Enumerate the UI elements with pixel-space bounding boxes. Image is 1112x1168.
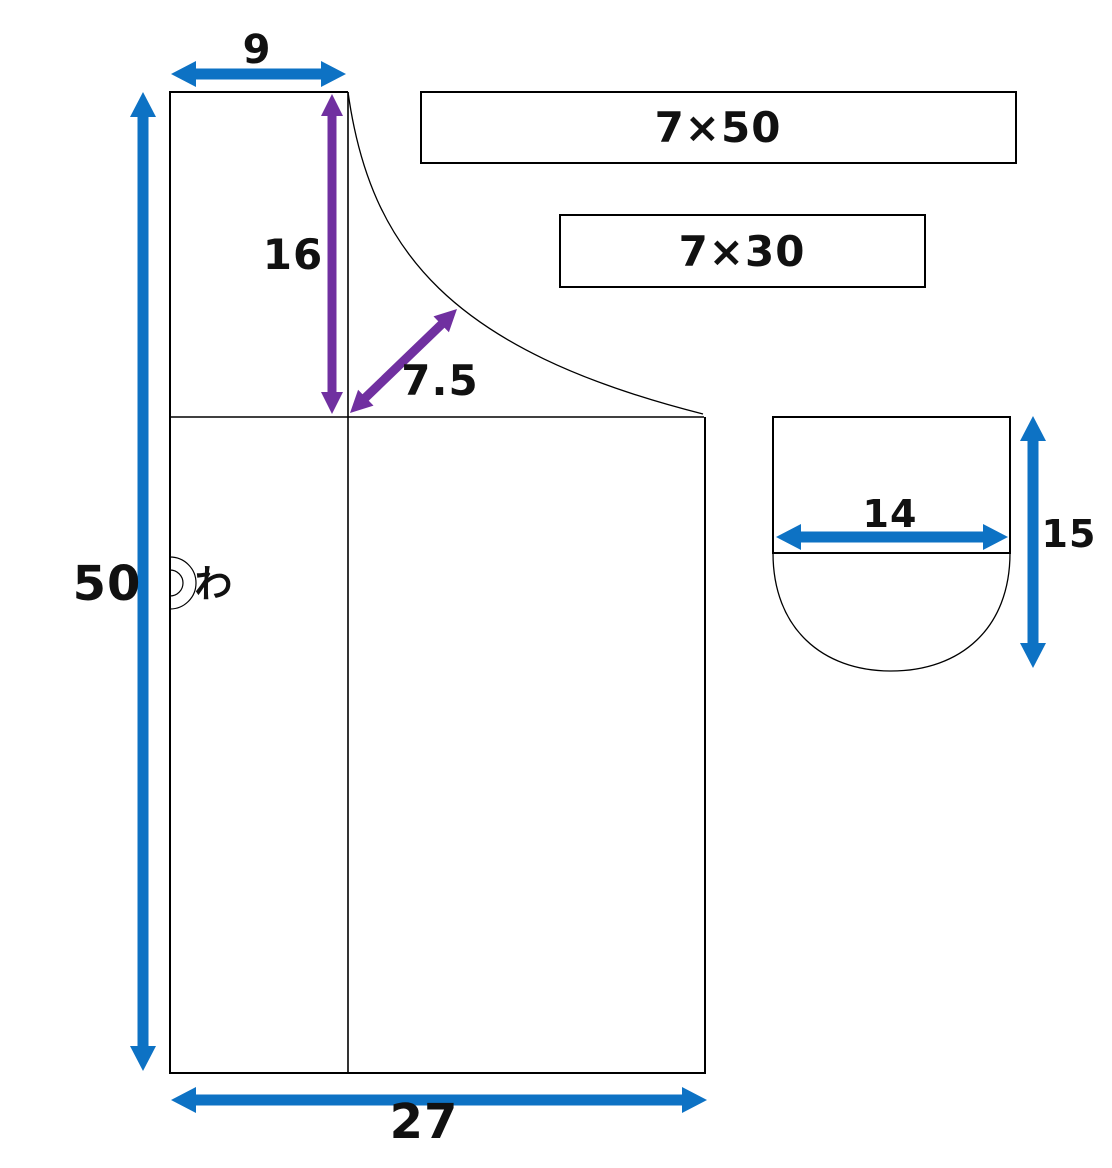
- tie-long-label: 7×50: [655, 107, 782, 149]
- body-width-arrow-left-head: [171, 1087, 196, 1113]
- fold-mark-label: わ: [194, 565, 233, 603]
- body-length-arrow-top-head: [130, 92, 156, 117]
- fold-mark-inner-arc: [170, 570, 183, 596]
- pocket-height-arrow-top-head: [1020, 416, 1046, 441]
- sewing-pattern-diagram: 9 16 7.5 50 わ 27 7×50 7×30 14 15: [0, 0, 1112, 1168]
- strap-width-label: 9: [243, 30, 272, 70]
- apron-body-piece: [170, 92, 705, 1073]
- pocket-bottom-curve: [773, 553, 1010, 671]
- pocket-width-arrow-left-head: [776, 524, 801, 550]
- neck-depth-arrow: [321, 94, 343, 414]
- pocket-piece: [773, 417, 1010, 671]
- pocket-width-label: 14: [863, 495, 918, 533]
- pocket-height-label: 15: [1042, 515, 1097, 553]
- strap-width-arrow-right-head: [321, 61, 346, 87]
- body-width-arrow-right-head: [682, 1087, 707, 1113]
- body-length-arrow-bottom-head: [130, 1046, 156, 1071]
- body-outline: [170, 92, 705, 1073]
- neck-depth-label: 16: [263, 234, 323, 276]
- body-length-label: 50: [73, 560, 142, 608]
- pocket-width-arrow-right-head: [983, 524, 1008, 550]
- tie-short-label: 7×30: [679, 231, 806, 273]
- strap-width-arrow-left-head: [171, 61, 196, 87]
- body-width-label: 27: [390, 1098, 459, 1146]
- neck-depth-arrow-top-head: [321, 94, 343, 116]
- neck-depth-arrow-bottom-head: [321, 392, 343, 414]
- neck-curve-depth-label: 7.5: [401, 360, 478, 402]
- pocket-height-arrow-bottom-head: [1020, 643, 1046, 668]
- pattern-shapes-layer: [0, 0, 1112, 1168]
